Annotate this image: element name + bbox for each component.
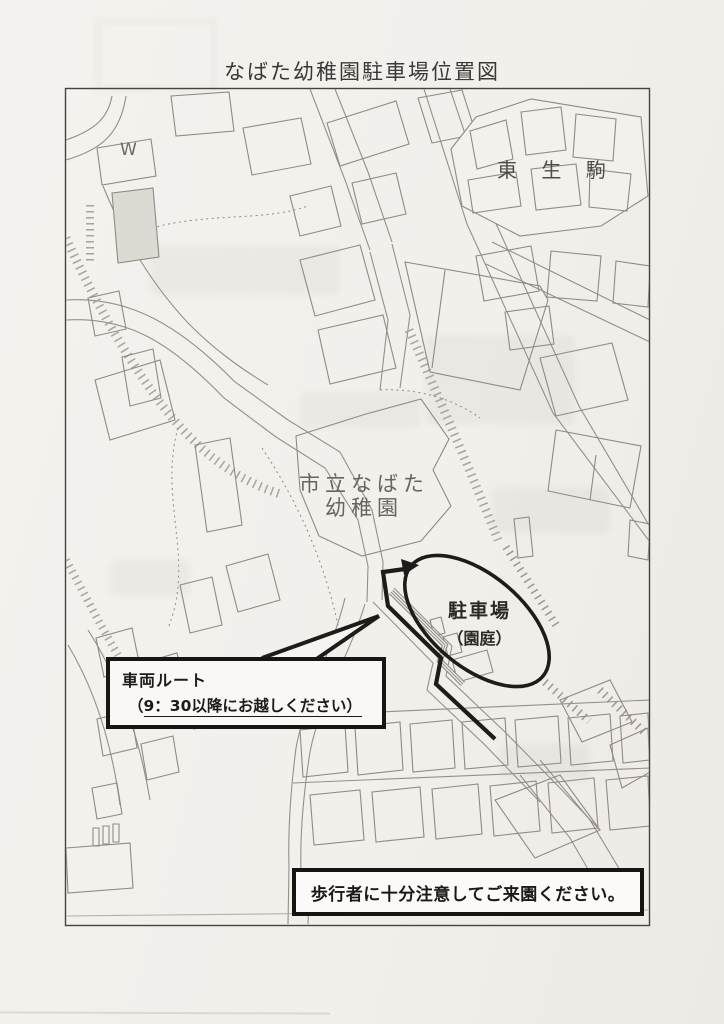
scanned-map-page: なばた幼稚園駐車場位置図 W 東 生 駒 市立なばた 幼稚園 駐車場 （園庭） … [0, 0, 724, 1024]
map-label-kindergarten: 市立なばた 幼稚園 [264, 472, 464, 520]
kindergarten-label-line1: 市立なばた [264, 472, 464, 496]
kindergarten-label-line2: 幼稚園 [264, 496, 464, 520]
callout-line1: 車両ルート [122, 667, 372, 691]
parking-label-line2: （園庭） [402, 625, 557, 649]
dotted-boundaries [152, 206, 480, 628]
callout-line2-underlined: 9：30以降にお越しください） [144, 697, 362, 717]
callout-line2: （9：30以降にお越しください） [128, 694, 372, 716]
pedestrian-notice-box: 歩行者に十分注意してご来園ください。 [292, 868, 644, 916]
callout-line2-paren: （ [128, 697, 144, 716]
map-label-parking: 駐車場 （園庭） [402, 596, 557, 649]
map-label-district: 東 生 駒 [497, 154, 615, 183]
notice-text: 歩行者に十分注意してご来園ください。 [311, 880, 626, 905]
slope-hatching [66, 205, 498, 655]
vehicle-route-callout: 車両ルート （9：30以降にお越しください） [106, 657, 386, 729]
map-label-w: W [120, 140, 137, 160]
parking-label-line1: 駐車場 [402, 596, 557, 623]
page-title: なばた幼稚園駐車場位置図 [0, 56, 724, 86]
